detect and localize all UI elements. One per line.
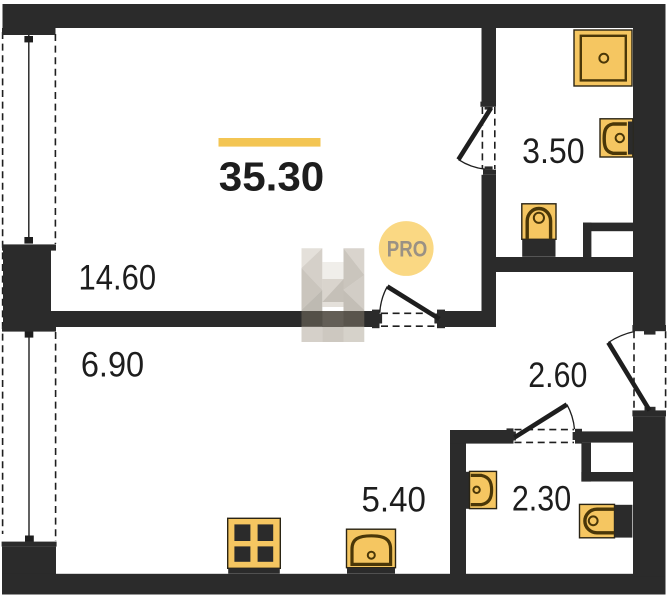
svg-text:14.60: 14.60 xyxy=(79,258,157,298)
svg-text:2.60: 2.60 xyxy=(528,355,587,395)
svg-text:35.30: 35.30 xyxy=(219,153,325,199)
svg-text:5.40: 5.40 xyxy=(362,480,426,520)
svg-text:3.50: 3.50 xyxy=(522,131,585,171)
svg-text:PRO: PRO xyxy=(387,236,428,261)
svg-text:6.90: 6.90 xyxy=(81,345,144,385)
svg-text:2.30: 2.30 xyxy=(512,479,571,519)
